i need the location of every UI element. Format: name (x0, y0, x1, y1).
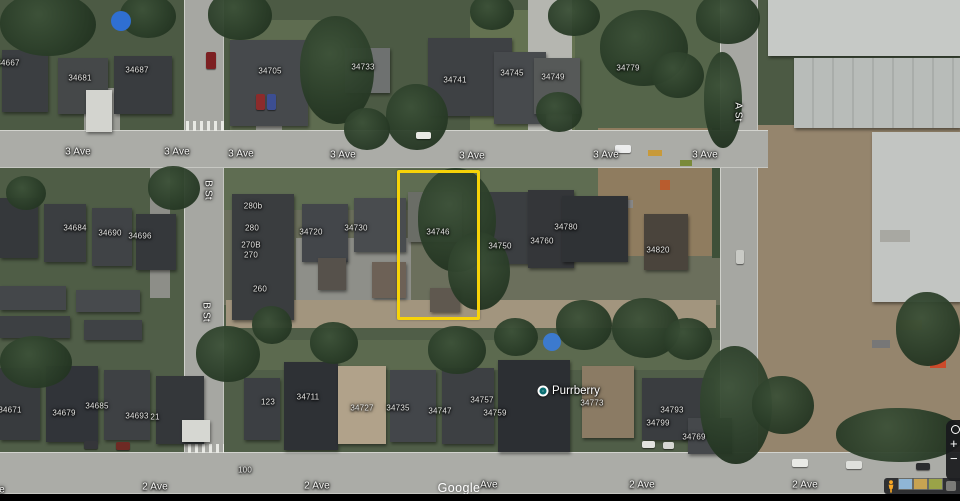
tree (0, 336, 72, 388)
yard-junk (872, 340, 890, 348)
address-label: 34693 (125, 412, 148, 421)
mobile-home-roof (84, 320, 142, 340)
house-roof (136, 214, 176, 270)
address-label: 34746 (426, 228, 449, 237)
house-roof (44, 204, 86, 262)
car (792, 459, 808, 467)
address-label: 100 (238, 466, 252, 475)
address-label: 34733 (351, 63, 374, 72)
zoom-in-button[interactable]: + (950, 438, 958, 449)
play-structure (660, 180, 670, 190)
house-roof (284, 362, 338, 450)
address-label: 34749 (541, 73, 564, 82)
tree (310, 322, 358, 364)
tree (836, 408, 960, 462)
street-label: 3 Ave (65, 147, 91, 158)
yard-junk (880, 230, 910, 242)
map-thumbnails (898, 477, 943, 495)
street-label: 3 Ave (692, 150, 718, 161)
address-label: 34705 (258, 67, 281, 76)
play-structure (648, 150, 662, 156)
warehouse-roof (794, 58, 960, 128)
car (416, 132, 431, 139)
warehouse-roof (768, 0, 960, 56)
address-label: 34687 (125, 66, 148, 75)
car (84, 441, 98, 449)
mobile-home-roof (76, 290, 140, 312)
car (736, 250, 744, 264)
car (116, 442, 130, 450)
address-label: 123 (261, 398, 275, 407)
map-thumbnail[interactable] (898, 478, 913, 490)
street-label: 3 Ave (164, 147, 190, 158)
pool (111, 11, 131, 31)
car (916, 463, 930, 470)
tree (196, 326, 260, 382)
car (256, 94, 265, 110)
car (846, 461, 862, 469)
carport-roof (182, 420, 210, 442)
map-canvas[interactable]: 3 Ave3 Ave3 Ave3 Ave3 Ave3 Ave3 Ave2 Ave… (0, 0, 960, 501)
address-label: 34681 (68, 74, 91, 83)
address-label: 34690 (98, 229, 121, 238)
house-roof (244, 378, 280, 440)
house-roof (498, 360, 570, 452)
address-label: 280 (245, 224, 259, 233)
address-label: 34769 (682, 433, 705, 442)
street-label: 3 Ave (459, 151, 485, 162)
street-label-vertical: A St (733, 102, 744, 121)
address-label: 34684 (63, 224, 86, 233)
crosswalk (188, 444, 224, 453)
trailer-roof (86, 90, 112, 132)
street-label: 2 Ave (629, 480, 655, 491)
street-label: 2 Ave (792, 480, 818, 491)
house-roof (644, 214, 688, 270)
crosswalk (186, 121, 226, 131)
address-label: 21 (150, 413, 159, 422)
mobile-home-roof (0, 316, 70, 338)
street-label: 3 Ave (228, 149, 254, 160)
street-label: 2 Ave (304, 481, 330, 492)
poi-label-purrberry[interactable]: Purrberry (552, 385, 600, 397)
house-roof (104, 370, 150, 440)
tree (428, 326, 486, 374)
address-label: 280b (244, 202, 263, 211)
warehouse-roof (872, 132, 960, 302)
tree (6, 176, 46, 210)
car (642, 441, 655, 448)
address-label: 34671 (0, 406, 22, 415)
address-label: 34799 (646, 419, 669, 428)
tree (536, 92, 582, 132)
address-label: 34779 (616, 64, 639, 73)
layers-icon[interactable] (951, 425, 960, 434)
address-label: 260 (253, 285, 267, 294)
tree (664, 318, 712, 360)
address-label: 34730 (344, 224, 367, 233)
map-thumbnail[interactable] (913, 478, 928, 490)
address-label: 270 (244, 251, 258, 260)
tree (704, 52, 742, 148)
address-label: 34735 (386, 404, 409, 413)
address-label: 34760 (530, 237, 553, 246)
shed-roof (318, 258, 346, 290)
map-thumbnail[interactable] (928, 478, 943, 490)
highlight-box (397, 170, 480, 320)
tree (896, 292, 960, 366)
apartment-roof (232, 194, 294, 320)
street-view-bar (884, 478, 960, 494)
address-label: 34750 (488, 242, 511, 251)
street-label: 3 Ave (593, 150, 619, 161)
house-roof (230, 40, 308, 126)
pegman-icon[interactable] (887, 480, 895, 493)
tree (494, 318, 538, 356)
zoom-out-button[interactable]: − (950, 453, 958, 464)
address-label: 34793 (660, 406, 683, 415)
address-label: 34745 (500, 69, 523, 78)
tree (344, 108, 390, 150)
street-label: Ave (480, 480, 498, 491)
poi-marker-purrberry[interactable] (538, 386, 549, 397)
street-label-vertical: B St (203, 180, 214, 200)
car (206, 52, 216, 69)
address-label: 34679 (52, 409, 75, 418)
address-label: 34667 (0, 59, 20, 68)
play-structure (680, 160, 692, 166)
zoom-controls: + − (946, 420, 960, 481)
mobile-home-roof (0, 286, 66, 310)
tree (652, 52, 704, 98)
letterbox-bar (0, 494, 960, 501)
address-label: 34741 (443, 76, 466, 85)
car (663, 442, 674, 449)
address-label: 34759 (483, 409, 506, 418)
tree (556, 300, 612, 350)
tree (386, 84, 448, 150)
street-label: 3 Ave (330, 150, 356, 161)
address-label: 34711 (297, 393, 320, 402)
street-label: 2 Ave (142, 482, 168, 493)
tree (252, 306, 292, 344)
address-label: 34747 (428, 407, 451, 416)
address-label: 34780 (554, 223, 577, 232)
pool (543, 333, 561, 351)
street-label-vertical: B St (201, 302, 212, 322)
address-label: 34757 (470, 396, 493, 405)
tree (752, 376, 814, 434)
partial-icon (946, 481, 956, 491)
car (267, 94, 276, 110)
address-label: 34696 (128, 232, 151, 241)
tree (148, 166, 200, 210)
address-label: 34820 (646, 246, 669, 255)
address-label: 34685 (85, 402, 108, 411)
google-watermark: Google (438, 481, 481, 495)
address-label: 34773 (580, 399, 603, 408)
address-label: 34727 (350, 404, 373, 413)
address-label: 270B (241, 241, 260, 250)
address-label: 34720 (299, 228, 322, 237)
